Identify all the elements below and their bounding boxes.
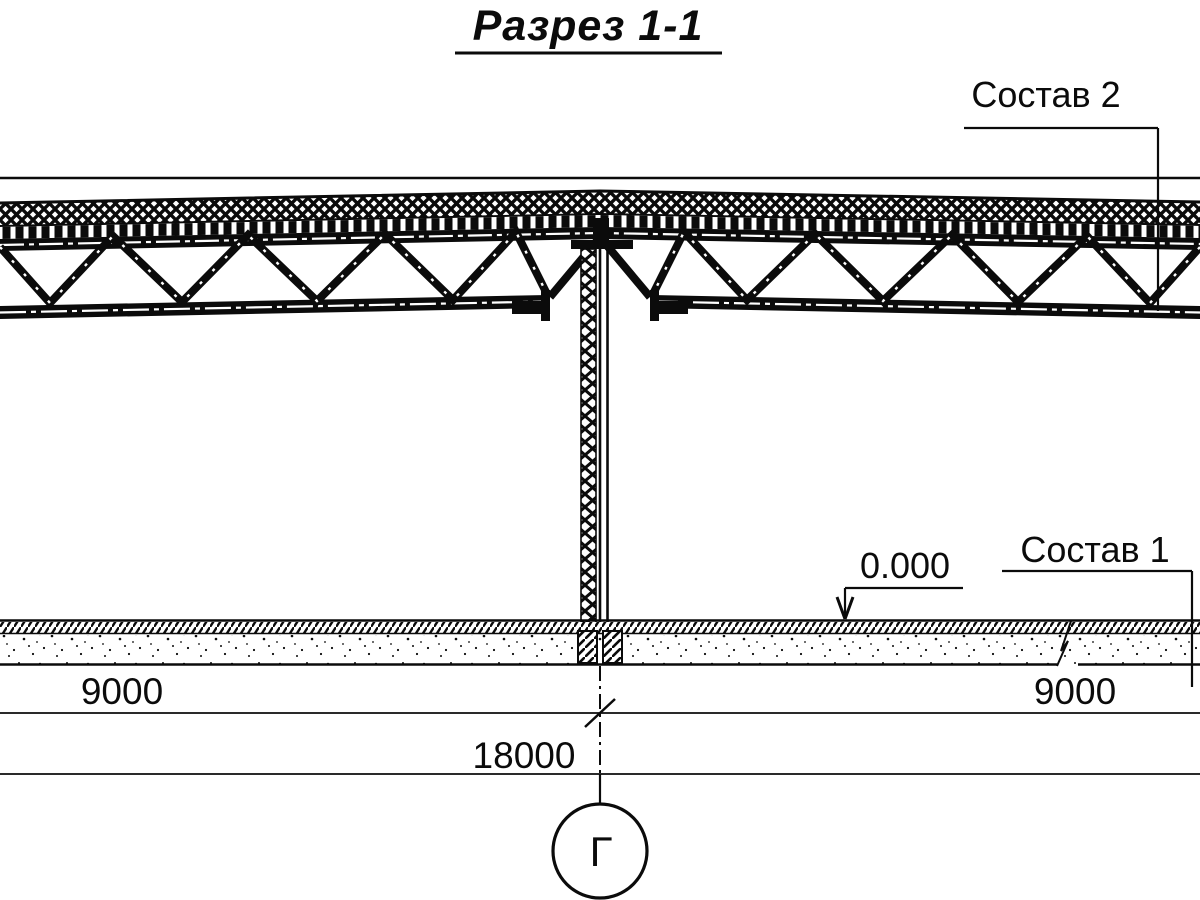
dimension-right-span: 9000: [1034, 671, 1116, 712]
truss-right-end-plate: [650, 290, 659, 321]
ridge-gusset-plate: [571, 240, 633, 249]
dimension-left-span: 9000: [81, 671, 163, 712]
truss-right-end-diagonal: [604, 242, 650, 297]
floor-slab: [0, 621, 1200, 667]
grid-axis: Г: [553, 666, 647, 898]
elevation-mark: 0.000: [837, 545, 963, 619]
column: [579, 249, 610, 632]
dimension-total-span: 18000: [473, 735, 576, 776]
floor-concrete-layer: [0, 635, 1200, 664]
foundation-block-right: [603, 631, 622, 663]
floor-screed-layer: [0, 622, 1200, 633]
column-laced-strut: [581, 249, 596, 631]
elevation-arrow-left: [837, 597, 845, 619]
truss-left-bottom-chord: [0, 295, 548, 319]
elevation-value: 0.000: [860, 545, 950, 586]
composition1-label: Состав 1: [1020, 529, 1169, 570]
title-block: Разрез 1-1: [455, 2, 722, 53]
elevation-arrow-right: [845, 597, 853, 619]
axis-label: Г: [590, 828, 613, 875]
truss-right-bottom-chord: [652, 295, 1200, 319]
drawing-title: Разрез 1-1: [473, 2, 704, 50]
section-drawing: Разрез 1-1: [0, 0, 1200, 900]
drawing-sheet: Разрез 1-1: [0, 0, 1200, 900]
foundation-block-left: [578, 631, 597, 663]
composition2-label: Состав 2: [971, 74, 1120, 115]
truss-left-end-plate: [541, 290, 550, 321]
